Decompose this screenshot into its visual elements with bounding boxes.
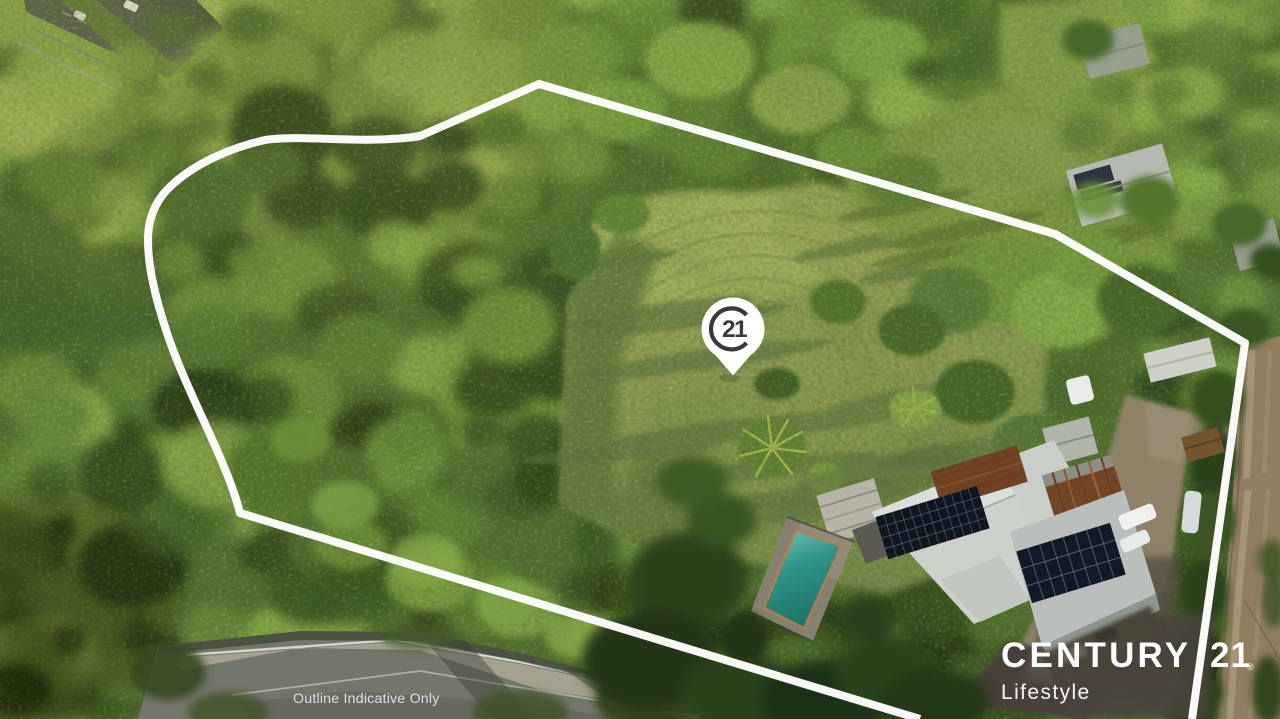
svg-text:®: ® bbox=[1247, 662, 1254, 672]
svg-text:CENTURY: CENTURY bbox=[1001, 636, 1191, 675]
svg-text:Lifestyle: Lifestyle bbox=[1001, 681, 1091, 704]
svg-text:21: 21 bbox=[1210, 636, 1251, 675]
svg-text:Outline Indicative Only: Outline Indicative Only bbox=[293, 691, 440, 707]
svg-text:21: 21 bbox=[722, 316, 747, 343]
